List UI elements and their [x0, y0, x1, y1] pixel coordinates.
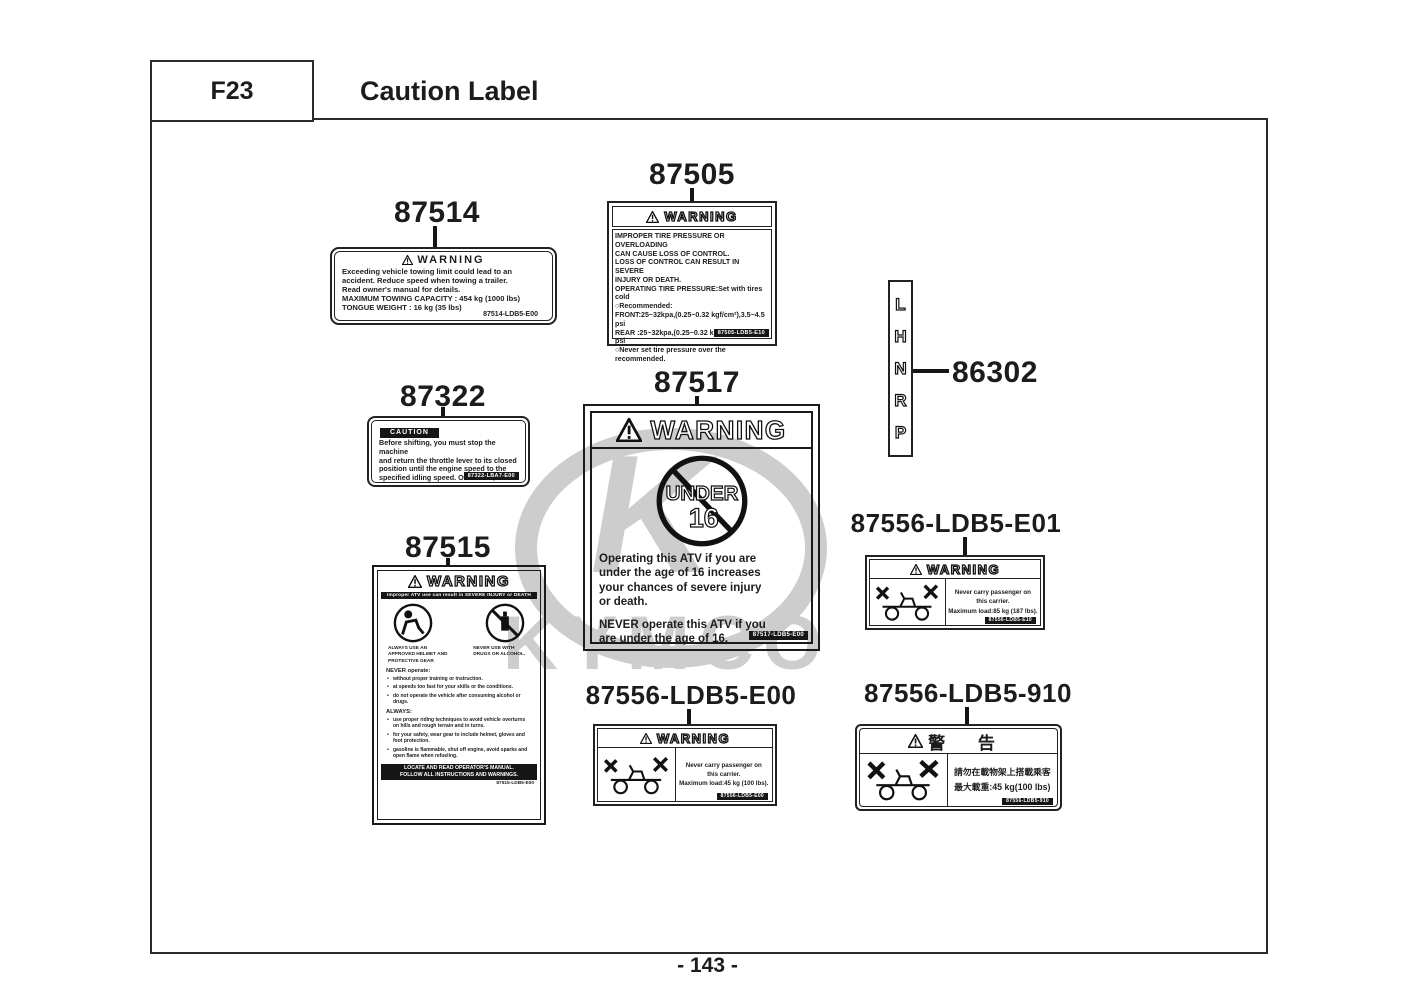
atv-no-passenger-pictogram — [873, 582, 941, 622]
callout-line-87556-e01 — [963, 537, 967, 555]
callout-line-87514 — [433, 226, 437, 247]
gear-letter: P — [895, 424, 906, 441]
always-item: for your safety, wear gear to include he… — [386, 732, 532, 745]
never-item: at speeds too fast for your skills or th… — [386, 684, 532, 691]
label-87514: WARNING Exceeding vehicle towing limit c… — [330, 247, 557, 325]
label-87556-ldb5-e01: WARNING Never carry passenger on this ca… — [865, 555, 1045, 630]
label-86302-gear-indicator: L H N R P — [888, 280, 913, 457]
warning-subheader: Improper ATV use can result in SEVERE IN… — [381, 592, 537, 599]
label-code: 87514-LDB5-E00 — [483, 311, 538, 318]
warning-header: WARNING — [417, 254, 484, 266]
part-number-86302: 86302 — [952, 356, 1038, 390]
label-code: 87505-LDB5-E10 — [714, 329, 769, 337]
callout-line-87515 — [446, 558, 450, 565]
label-87322: CAUTION Before shifting, you must stop t… — [367, 416, 530, 487]
label-87505: WARNING IMPROPER TIRE PRESSURE OR OVERLO… — [607, 201, 777, 346]
always-title: ALWAYS: — [386, 709, 532, 715]
callout-line-87322 — [441, 407, 445, 416]
page-number: - 143 - — [0, 954, 1415, 978]
label-paragraph-2: NEVER operate this ATV if you are under … — [592, 610, 811, 647]
never-title: NEVER operate: — [386, 668, 532, 674]
never-item: do not operate the vehicle after consumi… — [386, 693, 532, 706]
caption-no-drugs: NEVER USE WITH DRUGS OR ALCOHOL. — [473, 646, 530, 665]
label-87515: WARNING Improper ATV use can result in S… — [372, 565, 546, 825]
label-87556-ldb5-e00: WARNING Never carry passenger on this ca… — [593, 724, 777, 806]
part-number-87556-ldb5-e00: 87556-LDB5-E00 — [560, 680, 822, 711]
sixteen-text: 16 — [688, 503, 718, 533]
gear-letter: R — [894, 392, 906, 409]
warning-triangle-icon — [908, 734, 923, 748]
page-title: Caution Label — [360, 76, 539, 107]
callout-line-86302 — [913, 369, 949, 373]
part-number-87556-ldb5-910: 87556-LDB5-910 — [837, 678, 1099, 709]
callout-line-87556-910 — [965, 707, 969, 724]
part-number-87514: 87514 — [377, 196, 497, 230]
callout-line-87505 — [690, 188, 694, 201]
no-under-16-pictogram: UNDER 16 — [653, 452, 751, 550]
part-number-87505: 87505 — [632, 158, 752, 192]
callout-line-87517 — [695, 396, 699, 404]
warning-triangle-icon — [616, 418, 642, 442]
caption-helmet: ALWAYS USE AN APPROVED HELMET AND PROTEC… — [388, 646, 453, 665]
under-text: UNDER — [665, 482, 738, 505]
atv-no-passenger-pictogram — [866, 757, 940, 803]
label-code: 87556-LDB5-E00 — [717, 793, 768, 801]
label-code: 87515-LDB5-E00 — [378, 780, 540, 786]
always-item: use proper riding techniques to avoid ve… — [386, 717, 532, 730]
atv-no-passenger-pictogram — [601, 754, 671, 796]
warning-triangle-icon — [640, 733, 652, 744]
warning-triangle-icon — [408, 575, 422, 588]
helmet-rider-pictogram — [392, 602, 434, 644]
warning-triangle-icon — [646, 211, 659, 223]
warning-triangle-icon — [910, 564, 922, 575]
section-code: F23 — [150, 60, 314, 122]
warning-triangle-icon — [402, 255, 413, 265]
warning-header: WARNING — [664, 209, 737, 224]
label-body-text: Exceeding vehicle towing limit could lea… — [335, 266, 552, 314]
no-drugs-alcohol-pictogram — [484, 602, 526, 644]
label-footer: LOCATE AND READ OPERATOR'S MANUAL. FOLLO… — [381, 764, 537, 780]
warning-header: WARNING — [657, 731, 730, 746]
always-item: gasoline is flammable, shut off engine, … — [386, 747, 532, 760]
label-code: 87556-LDB5-E10 — [985, 617, 1036, 625]
gear-letter: N — [894, 360, 906, 377]
part-number-87517: 87517 — [637, 366, 757, 400]
label-body-text: IMPROPER TIRE PRESSURE OR OVERLOADING CA… — [613, 230, 771, 366]
label-87556-ldb5-910: 警 告 請勿在載物架上搭載乘客 最大載重:45 kg(100 lbs) 8755… — [855, 724, 1062, 811]
never-item: without proper training or instruction. — [386, 676, 532, 683]
warning-header: WARNING — [427, 573, 510, 590]
warning-header: WARNING — [650, 415, 786, 446]
catalog-page: K KYMCO F23 Caution Label - 143 - 87514 … — [0, 0, 1415, 1000]
label-code: 87322-LBA7-E00 — [464, 472, 519, 480]
caution-header: CAUTION — [380, 428, 439, 438]
gear-letter: L — [895, 296, 905, 313]
part-number-87556-ldb5-e01: 87556-LDB5-E01 — [825, 508, 1087, 539]
label-code: 87517-LDB5-E00 — [749, 631, 808, 640]
warning-header: WARNING — [927, 562, 1000, 577]
warning-header-chinese: 警 告 — [928, 729, 1009, 754]
label-paragraph-1: Operating this ATV if you are under the … — [592, 550, 811, 610]
gear-letter: H — [894, 328, 906, 345]
callout-line-87556-e00 — [687, 709, 691, 724]
label-code: 87556-LDB5-910 — [1002, 798, 1053, 806]
label-87517: WARNING UNDER 16 Operating this ATV if y… — [583, 404, 820, 651]
